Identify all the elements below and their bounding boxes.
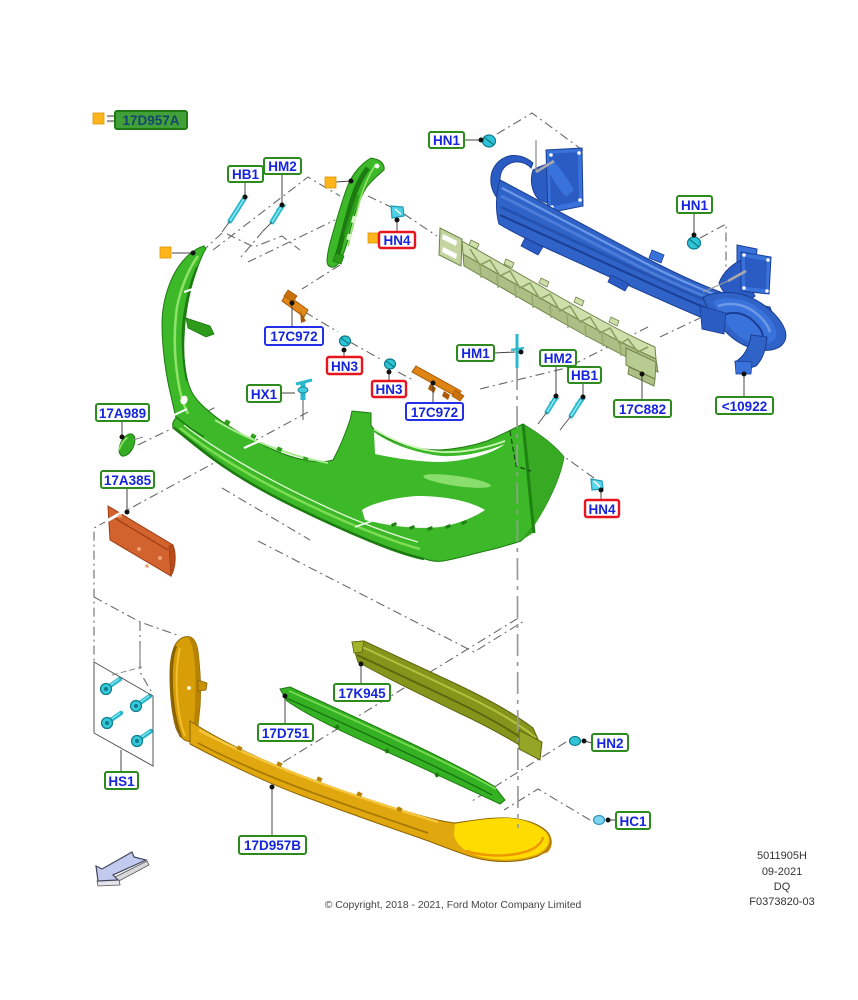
svg-text:17D751: 17D751: [262, 726, 310, 741]
svg-text:HM1: HM1: [461, 346, 490, 361]
svg-text:HS1: HS1: [108, 774, 135, 789]
svg-text:HN3: HN3: [375, 382, 402, 397]
svg-text:17D957A: 17D957A: [122, 113, 179, 128]
svg-text:HB1: HB1: [232, 167, 259, 182]
svg-text:F0373820-03: F0373820-03: [749, 896, 814, 908]
svg-text:17A385: 17A385: [104, 473, 152, 488]
svg-text:HN4: HN4: [588, 502, 615, 517]
svg-text:HM2: HM2: [544, 351, 573, 366]
svg-text:17D957B: 17D957B: [244, 838, 301, 853]
svg-text:HN1: HN1: [681, 198, 708, 213]
svg-text:DQ: DQ: [774, 881, 791, 893]
svg-text:HC1: HC1: [619, 814, 646, 829]
svg-text:17C882: 17C882: [619, 402, 666, 417]
svg-text:17C972: 17C972: [270, 329, 317, 344]
svg-text:HX1: HX1: [251, 387, 278, 402]
svg-text:17K945: 17K945: [338, 686, 386, 701]
svg-text:17A989: 17A989: [99, 406, 146, 421]
svg-text:09-2021: 09-2021: [762, 866, 802, 878]
svg-text:© Copyright, 2018 - 2021, Ford: © Copyright, 2018 - 2021, Ford Motor Com…: [325, 900, 582, 911]
svg-text:HN1: HN1: [433, 133, 460, 148]
svg-text:17C972: 17C972: [411, 405, 458, 420]
svg-text:HM2: HM2: [268, 159, 297, 174]
svg-text:<10922: <10922: [722, 399, 767, 414]
svg-text:HN4: HN4: [383, 233, 410, 248]
svg-text:HB1: HB1: [571, 368, 598, 383]
svg-text:HN3: HN3: [331, 359, 358, 374]
svg-text:5011905H: 5011905H: [757, 850, 807, 862]
svg-text:HN2: HN2: [596, 736, 623, 751]
